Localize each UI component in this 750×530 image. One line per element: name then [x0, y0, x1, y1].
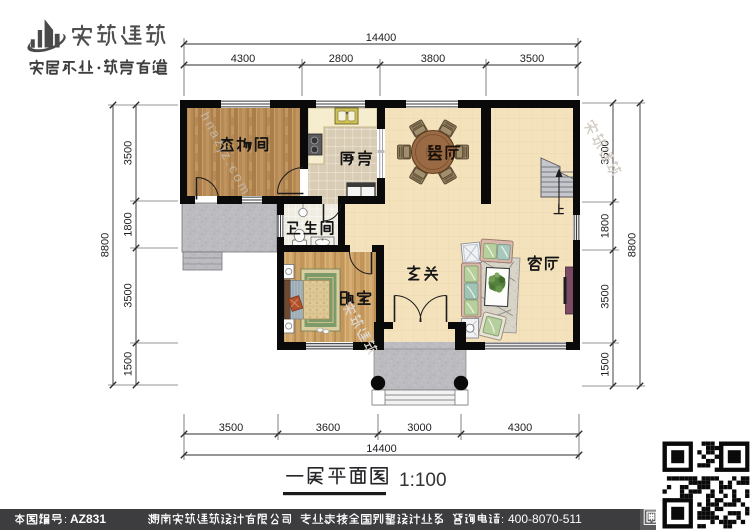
svg-text:14400: 14400	[366, 443, 397, 455]
svg-text:2800: 2800	[329, 53, 353, 65]
svg-text:14400: 14400	[366, 32, 397, 44]
svg-text:400-8070-511: 400-8070-511	[508, 512, 582, 526]
svg-text:3600: 3600	[316, 422, 340, 434]
svg-text:1800: 1800	[123, 212, 135, 236]
svg-text:AZ831: AZ831	[70, 512, 106, 526]
svg-text::: :	[501, 514, 504, 526]
svg-text:3500: 3500	[219, 422, 243, 434]
svg-text:1500: 1500	[123, 352, 135, 376]
svg-text:1800: 1800	[600, 214, 612, 238]
svg-text:1500: 1500	[600, 352, 612, 376]
svg-text:8800: 8800	[100, 233, 112, 257]
svg-text:4300: 4300	[231, 53, 255, 65]
svg-text:3800: 3800	[421, 53, 445, 65]
svg-text:3500: 3500	[600, 284, 612, 308]
svg-text:3500: 3500	[123, 141, 135, 165]
svg-text:1:100: 1:100	[399, 470, 447, 491]
svg-text:4300: 4300	[508, 422, 532, 434]
svg-text:8800: 8800	[627, 233, 639, 257]
svg-text:3500: 3500	[123, 283, 135, 307]
svg-text:3500: 3500	[520, 53, 544, 65]
svg-text:3000: 3000	[407, 422, 431, 434]
svg-text::: :	[64, 514, 67, 526]
